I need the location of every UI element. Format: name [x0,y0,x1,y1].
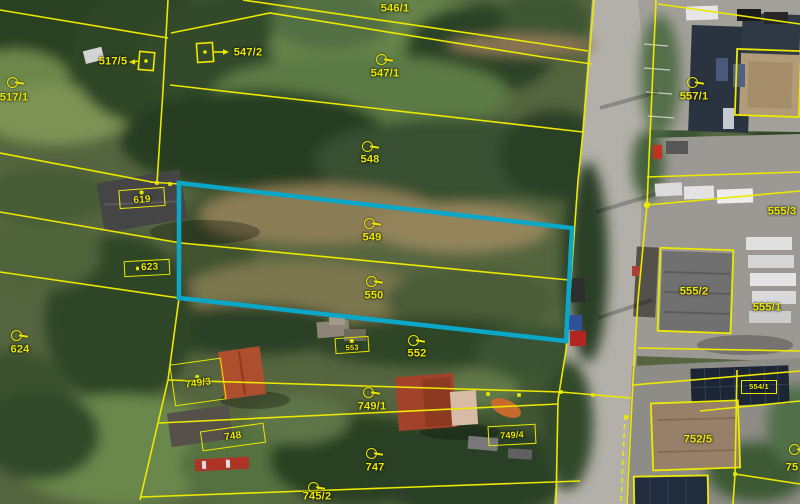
parcel-number: 749/4 [500,430,524,440]
parcel-label-555-3[interactable]: 555/3 [768,207,797,218]
unbuilt-parcel-icon [376,54,387,65]
unbuilt-parcel-icon [7,77,18,88]
parcel-label-553[interactable]: 553 [334,336,369,354]
unbuilt-parcel-icon [408,335,419,346]
unbuilt-parcel-icon [363,387,374,398]
map-viewport[interactable]: 517/1517/5547/2546/1547/1557/15486195496… [0,0,800,504]
unbuilt-parcel-icon [362,141,373,152]
parcel-label-748[interactable]: 748 [200,423,266,452]
unbuilt-parcel-icon [366,448,377,459]
unbuilt-parcel-icon [11,330,22,341]
parcel-number: 623 [141,262,159,273]
parcel-label-752-5[interactable]: 752/5 [684,435,713,446]
parcel-label-747[interactable]: 747 [366,463,385,474]
parcel-label-550[interactable]: 550 [365,291,384,302]
parcel-label-547-1[interactable]: 547/1 [371,69,400,80]
parcel-number: 554/1 [749,383,769,391]
unbuilt-parcel-icon [366,276,377,287]
parcel-label-624[interactable]: 624 [11,345,30,356]
parcel-label-552[interactable]: 552 [408,349,427,360]
parcel-label-619[interactable]: 619 [118,187,165,209]
parcel-label-555-2[interactable]: 555/2 [680,287,709,298]
parcel-number: 748 [224,431,243,443]
parcel-label-749-4[interactable]: 749/4 [488,424,537,446]
parcel-label-546-1[interactable]: 546/1 [381,4,410,15]
unbuilt-parcel-icon [687,77,698,88]
unbuilt-parcel-icon [364,218,375,229]
parcel-label-547-2[interactable]: 547/2 [234,48,263,59]
parcel-label-554-1[interactable]: 554/1 [741,380,777,394]
parcel-number: 553 [345,343,359,351]
parcel-label-549[interactable]: 549 [363,233,382,244]
parcel-number: 619 [133,195,151,206]
unbuilt-parcel-icon [789,444,800,455]
parcel-label-557-1[interactable]: 557/1 [680,92,709,103]
parcel-label-517-5[interactable]: 517/5 [99,57,128,68]
parcel-label-555-1[interactable]: 555/1 [753,303,782,314]
parcel-label-75[interactable]: 75 [786,463,799,474]
parcel-label-749-1[interactable]: 749/1 [358,402,387,413]
parcel-label-623[interactable]: 623 [124,259,171,277]
building-dot-icon [136,267,140,271]
parcel-label-749-3[interactable]: 749/3 [169,358,226,407]
parcel-label-548[interactable]: 548 [361,155,380,166]
parcel-labels-layer: 517/1517/5547/2546/1547/1557/15486195496… [0,0,800,504]
parcel-number: 749/3 [185,377,212,391]
parcel-label-517-1[interactable]: 517/1 [0,93,28,104]
parcel-label-745-2[interactable]: 745/2 [303,492,332,503]
